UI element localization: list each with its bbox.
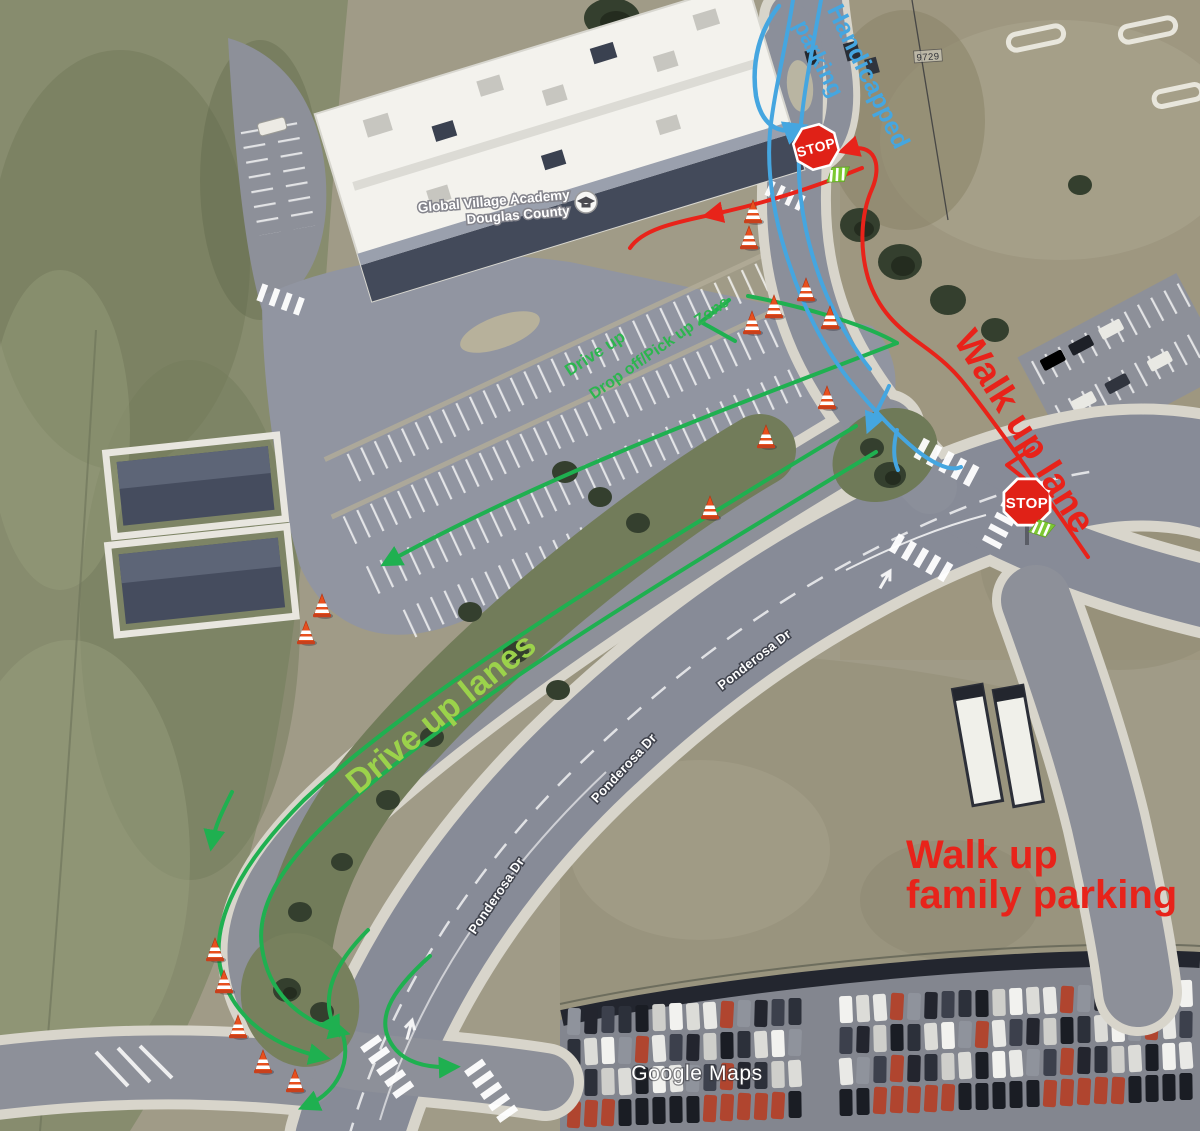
satellite-canvas[interactable]: Ponderosa DrPonderosa DrPonderosa Dr Glo… [0,0,1200,1131]
walk-up-family-line2-label: family parking [906,873,1177,917]
google-maps-attribution[interactable]: Google Maps [631,1062,763,1085]
parcel-label: 9729 [914,49,943,64]
walk-up-family-line1-label: Walk up [906,833,1058,877]
annotated-satellite-map[interactable]: Ponderosa DrPonderosa DrPonderosa Dr Glo… [0,0,1200,1131]
svg-text:9729: 9729 [916,51,940,64]
